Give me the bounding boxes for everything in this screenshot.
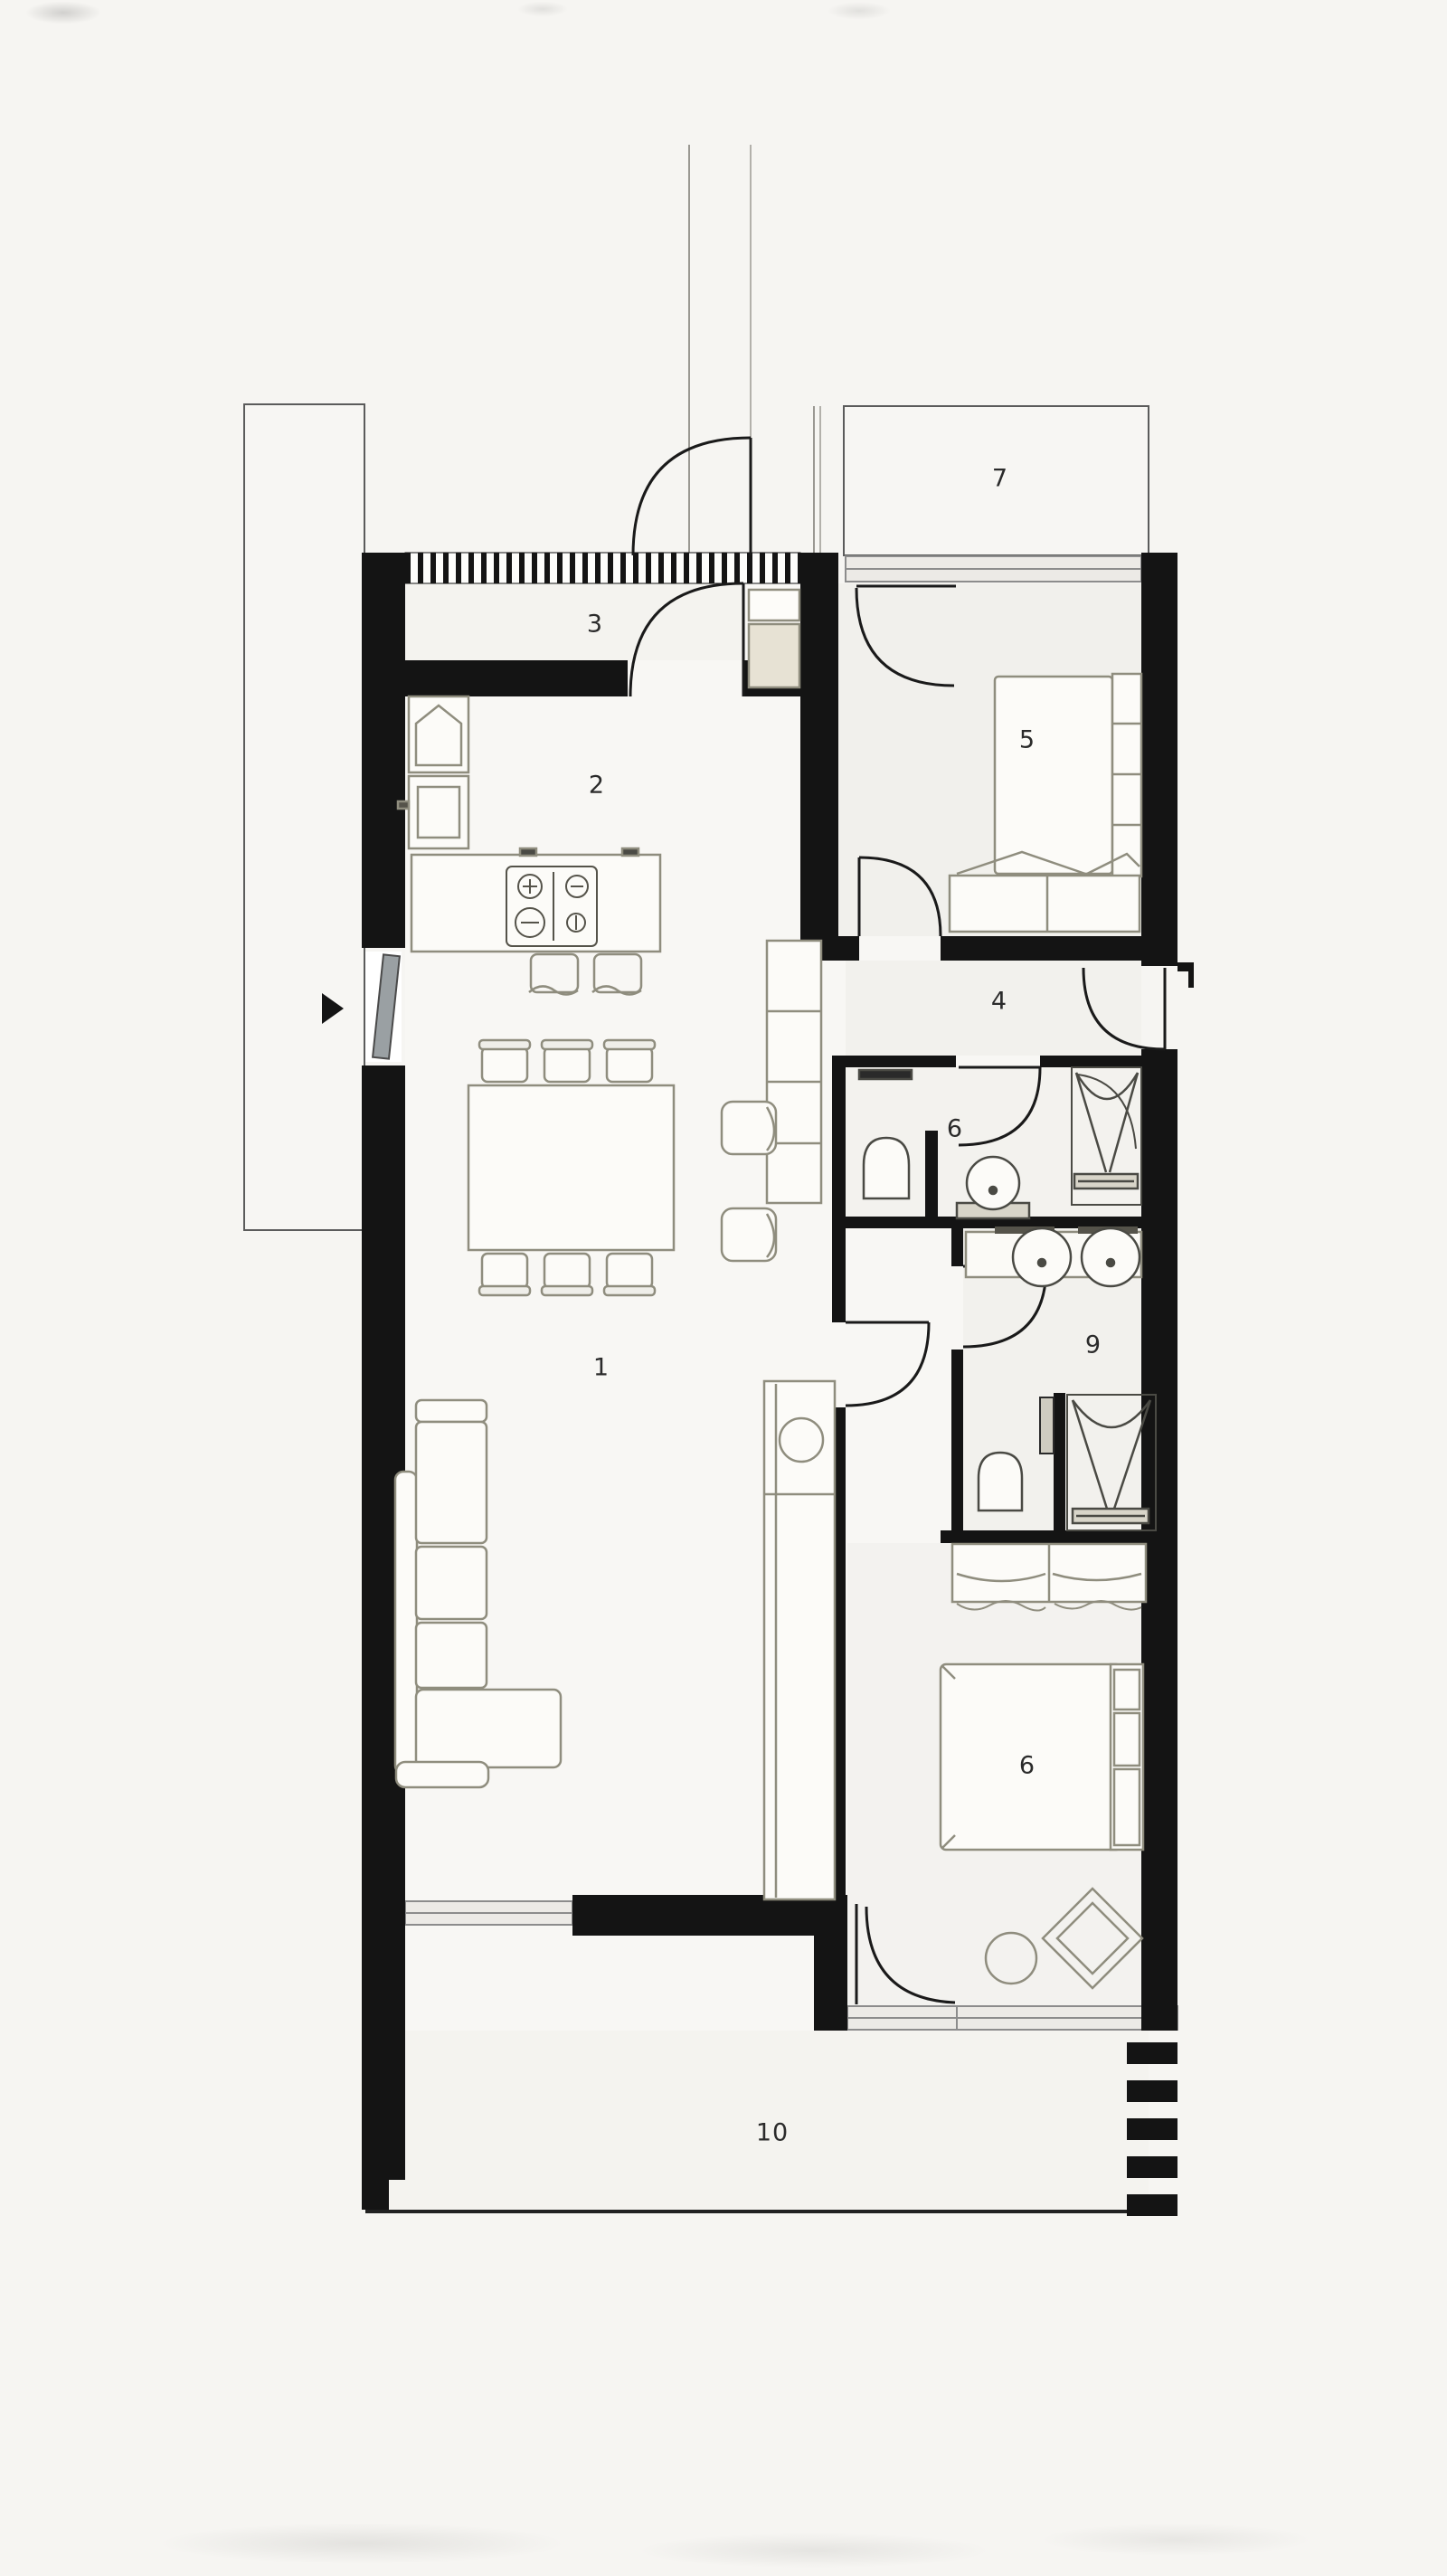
carport-outline: [244, 404, 364, 1230]
toilet: [979, 1453, 1022, 1511]
dining-chair: [479, 1254, 530, 1295]
room-label-bedroom-bottom: 6: [1019, 1752, 1036, 1780]
room-label-kitchen: 2: [589, 772, 605, 800]
towel-rail: [859, 1070, 912, 1079]
room-label-hallway: 4: [991, 988, 1007, 1016]
main-entry-door: [633, 438, 751, 555]
bedroom8-window: [847, 2006, 1177, 2030]
floor-plan-canvas: 1 2 3 4 5 6 7 9 10 6: [0, 0, 1447, 2576]
entry-closet: [749, 590, 799, 687]
fridge: [409, 696, 468, 772]
dining-chair: [542, 1254, 592, 1295]
terrace-edge-line: [365, 2210, 1150, 2213]
bedroom5-window: [846, 556, 1141, 582]
room-label-balcony7: 7: [992, 465, 1008, 493]
dining-chair: [479, 1040, 530, 1082]
floor-plan-drawing: [0, 0, 1447, 2576]
room-label-entry: 3: [587, 611, 603, 639]
dining-chair: [604, 1254, 655, 1295]
dining-chair: [542, 1040, 592, 1082]
kitchen-island: [411, 848, 660, 952]
dining-table: [468, 1085, 674, 1250]
room-label-ensuite9: 9: [1085, 1331, 1102, 1359]
dining-chair: [604, 1040, 655, 1082]
room-label-living: 1: [593, 1354, 610, 1382]
wardrobe: [952, 1544, 1146, 1611]
armchair: [722, 1208, 776, 1261]
oven: [398, 776, 468, 848]
toilet: [864, 1138, 909, 1198]
room-label-terrace10: 10: [756, 2119, 789, 2147]
bed: [941, 1664, 1143, 1850]
cabinet: [1040, 1397, 1054, 1454]
media-cabinet: [764, 1381, 835, 1899]
bed: [995, 674, 1141, 876]
armchair: [722, 1102, 776, 1154]
hatched-screen-wall: [405, 553, 800, 583]
living-window: [405, 1901, 572, 1925]
room-label-bathroom6: 6: [947, 1115, 963, 1143]
room-label-bedroom5: 5: [1019, 726, 1036, 754]
tall-cabinet-upper: [767, 941, 821, 1203]
double-vanity: [966, 1226, 1141, 1286]
construction-lines: [689, 145, 820, 553]
